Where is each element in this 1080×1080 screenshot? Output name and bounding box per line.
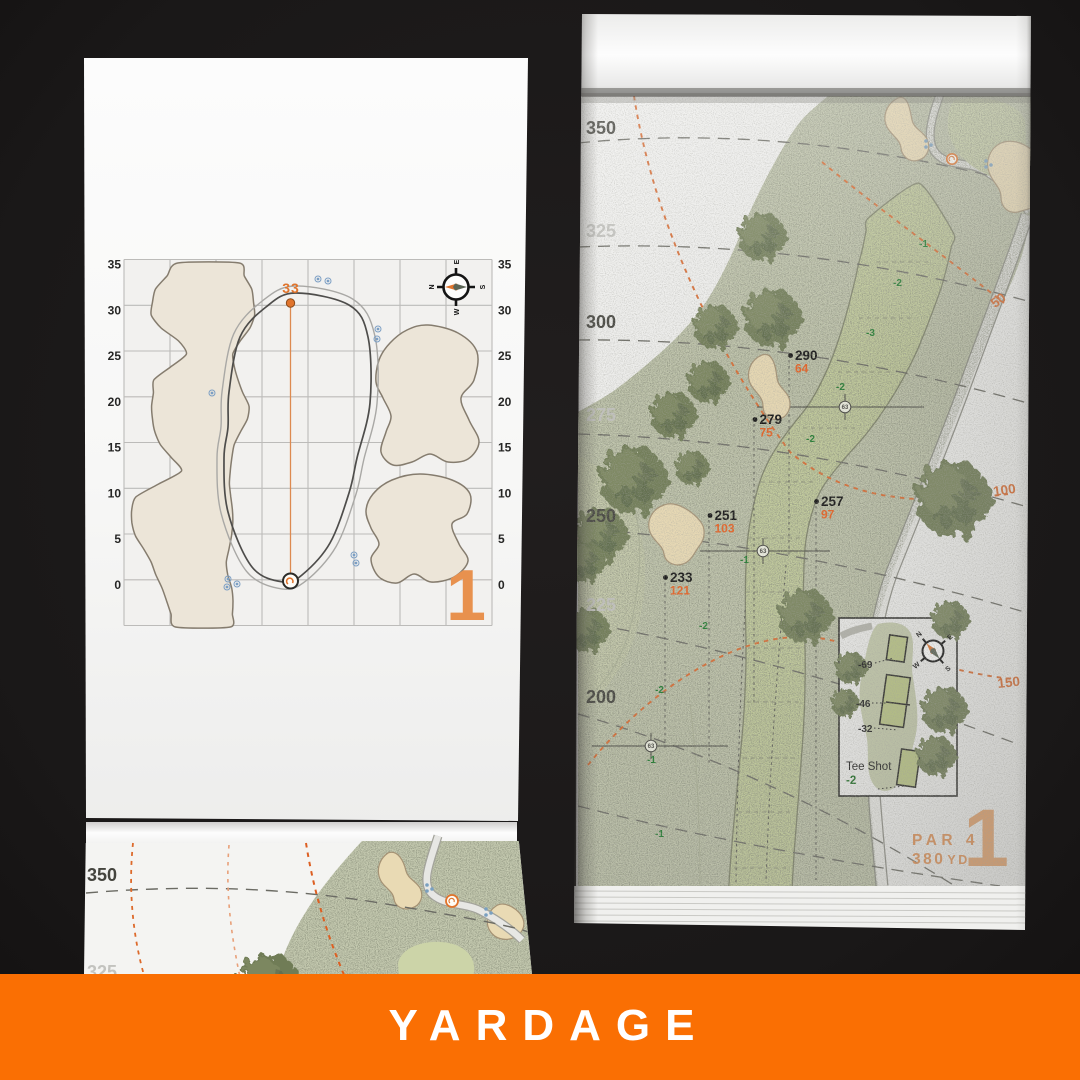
svg-text:N: N bbox=[429, 284, 436, 289]
svg-text:35: 35 bbox=[108, 258, 122, 272]
svg-text:25: 25 bbox=[108, 349, 122, 363]
svg-text:5: 5 bbox=[498, 532, 505, 546]
svg-text:10: 10 bbox=[108, 486, 122, 500]
svg-text:20: 20 bbox=[108, 395, 122, 409]
svg-text:350: 350 bbox=[87, 865, 117, 885]
svg-text:S: S bbox=[480, 284, 487, 289]
svg-text:25: 25 bbox=[498, 349, 512, 363]
svg-text:35: 35 bbox=[498, 258, 512, 272]
svg-text:E: E bbox=[454, 259, 461, 264]
svg-text:W: W bbox=[454, 308, 461, 315]
svg-text:1: 1 bbox=[446, 556, 486, 636]
svg-text:30: 30 bbox=[498, 303, 512, 317]
svg-text:YARDAGE: YARDAGE bbox=[389, 1001, 710, 1050]
svg-text:10: 10 bbox=[498, 486, 512, 500]
svg-text:20: 20 bbox=[498, 395, 512, 409]
svg-text:15: 15 bbox=[498, 441, 512, 455]
svg-text:0: 0 bbox=[114, 578, 121, 592]
svg-text:33: 33 bbox=[282, 280, 300, 296]
svg-text:30: 30 bbox=[108, 303, 122, 317]
svg-text:0: 0 bbox=[498, 578, 505, 592]
svg-text:5: 5 bbox=[114, 532, 121, 546]
svg-text:15: 15 bbox=[108, 441, 122, 455]
